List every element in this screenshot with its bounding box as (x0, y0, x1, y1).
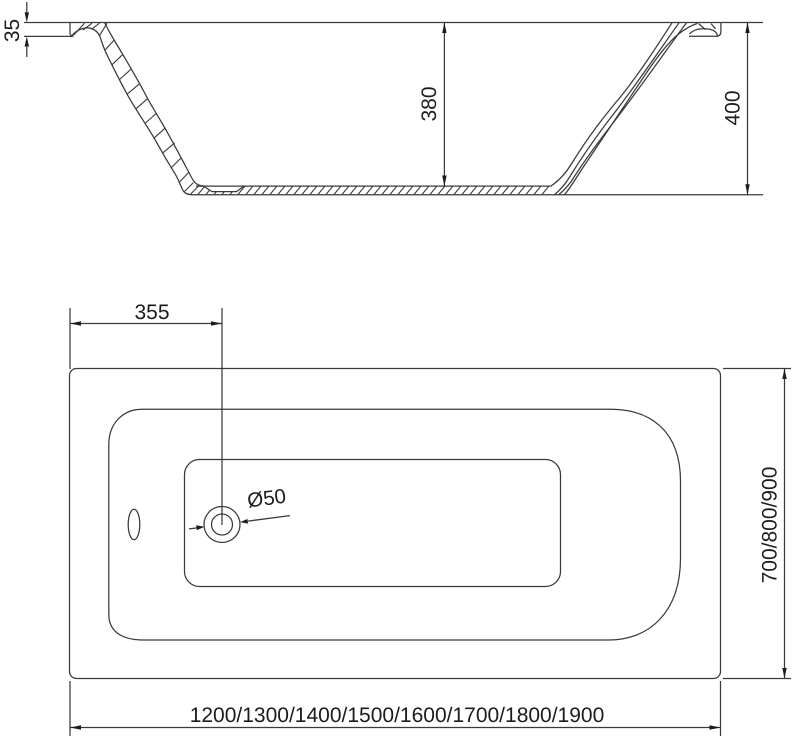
svg-text:380: 380 (418, 86, 441, 121)
svg-text:355: 355 (134, 301, 169, 324)
svg-text:35: 35 (1, 19, 24, 42)
svg-text:Ø50: Ø50 (246, 485, 287, 513)
svg-text:1200/1300/1400/1500/1600/1700/: 1200/1300/1400/1500/1600/1700/1800/1900 (190, 704, 605, 727)
svg-text:400: 400 (722, 90, 745, 125)
svg-text:700/800/900: 700/800/900 (759, 467, 782, 584)
